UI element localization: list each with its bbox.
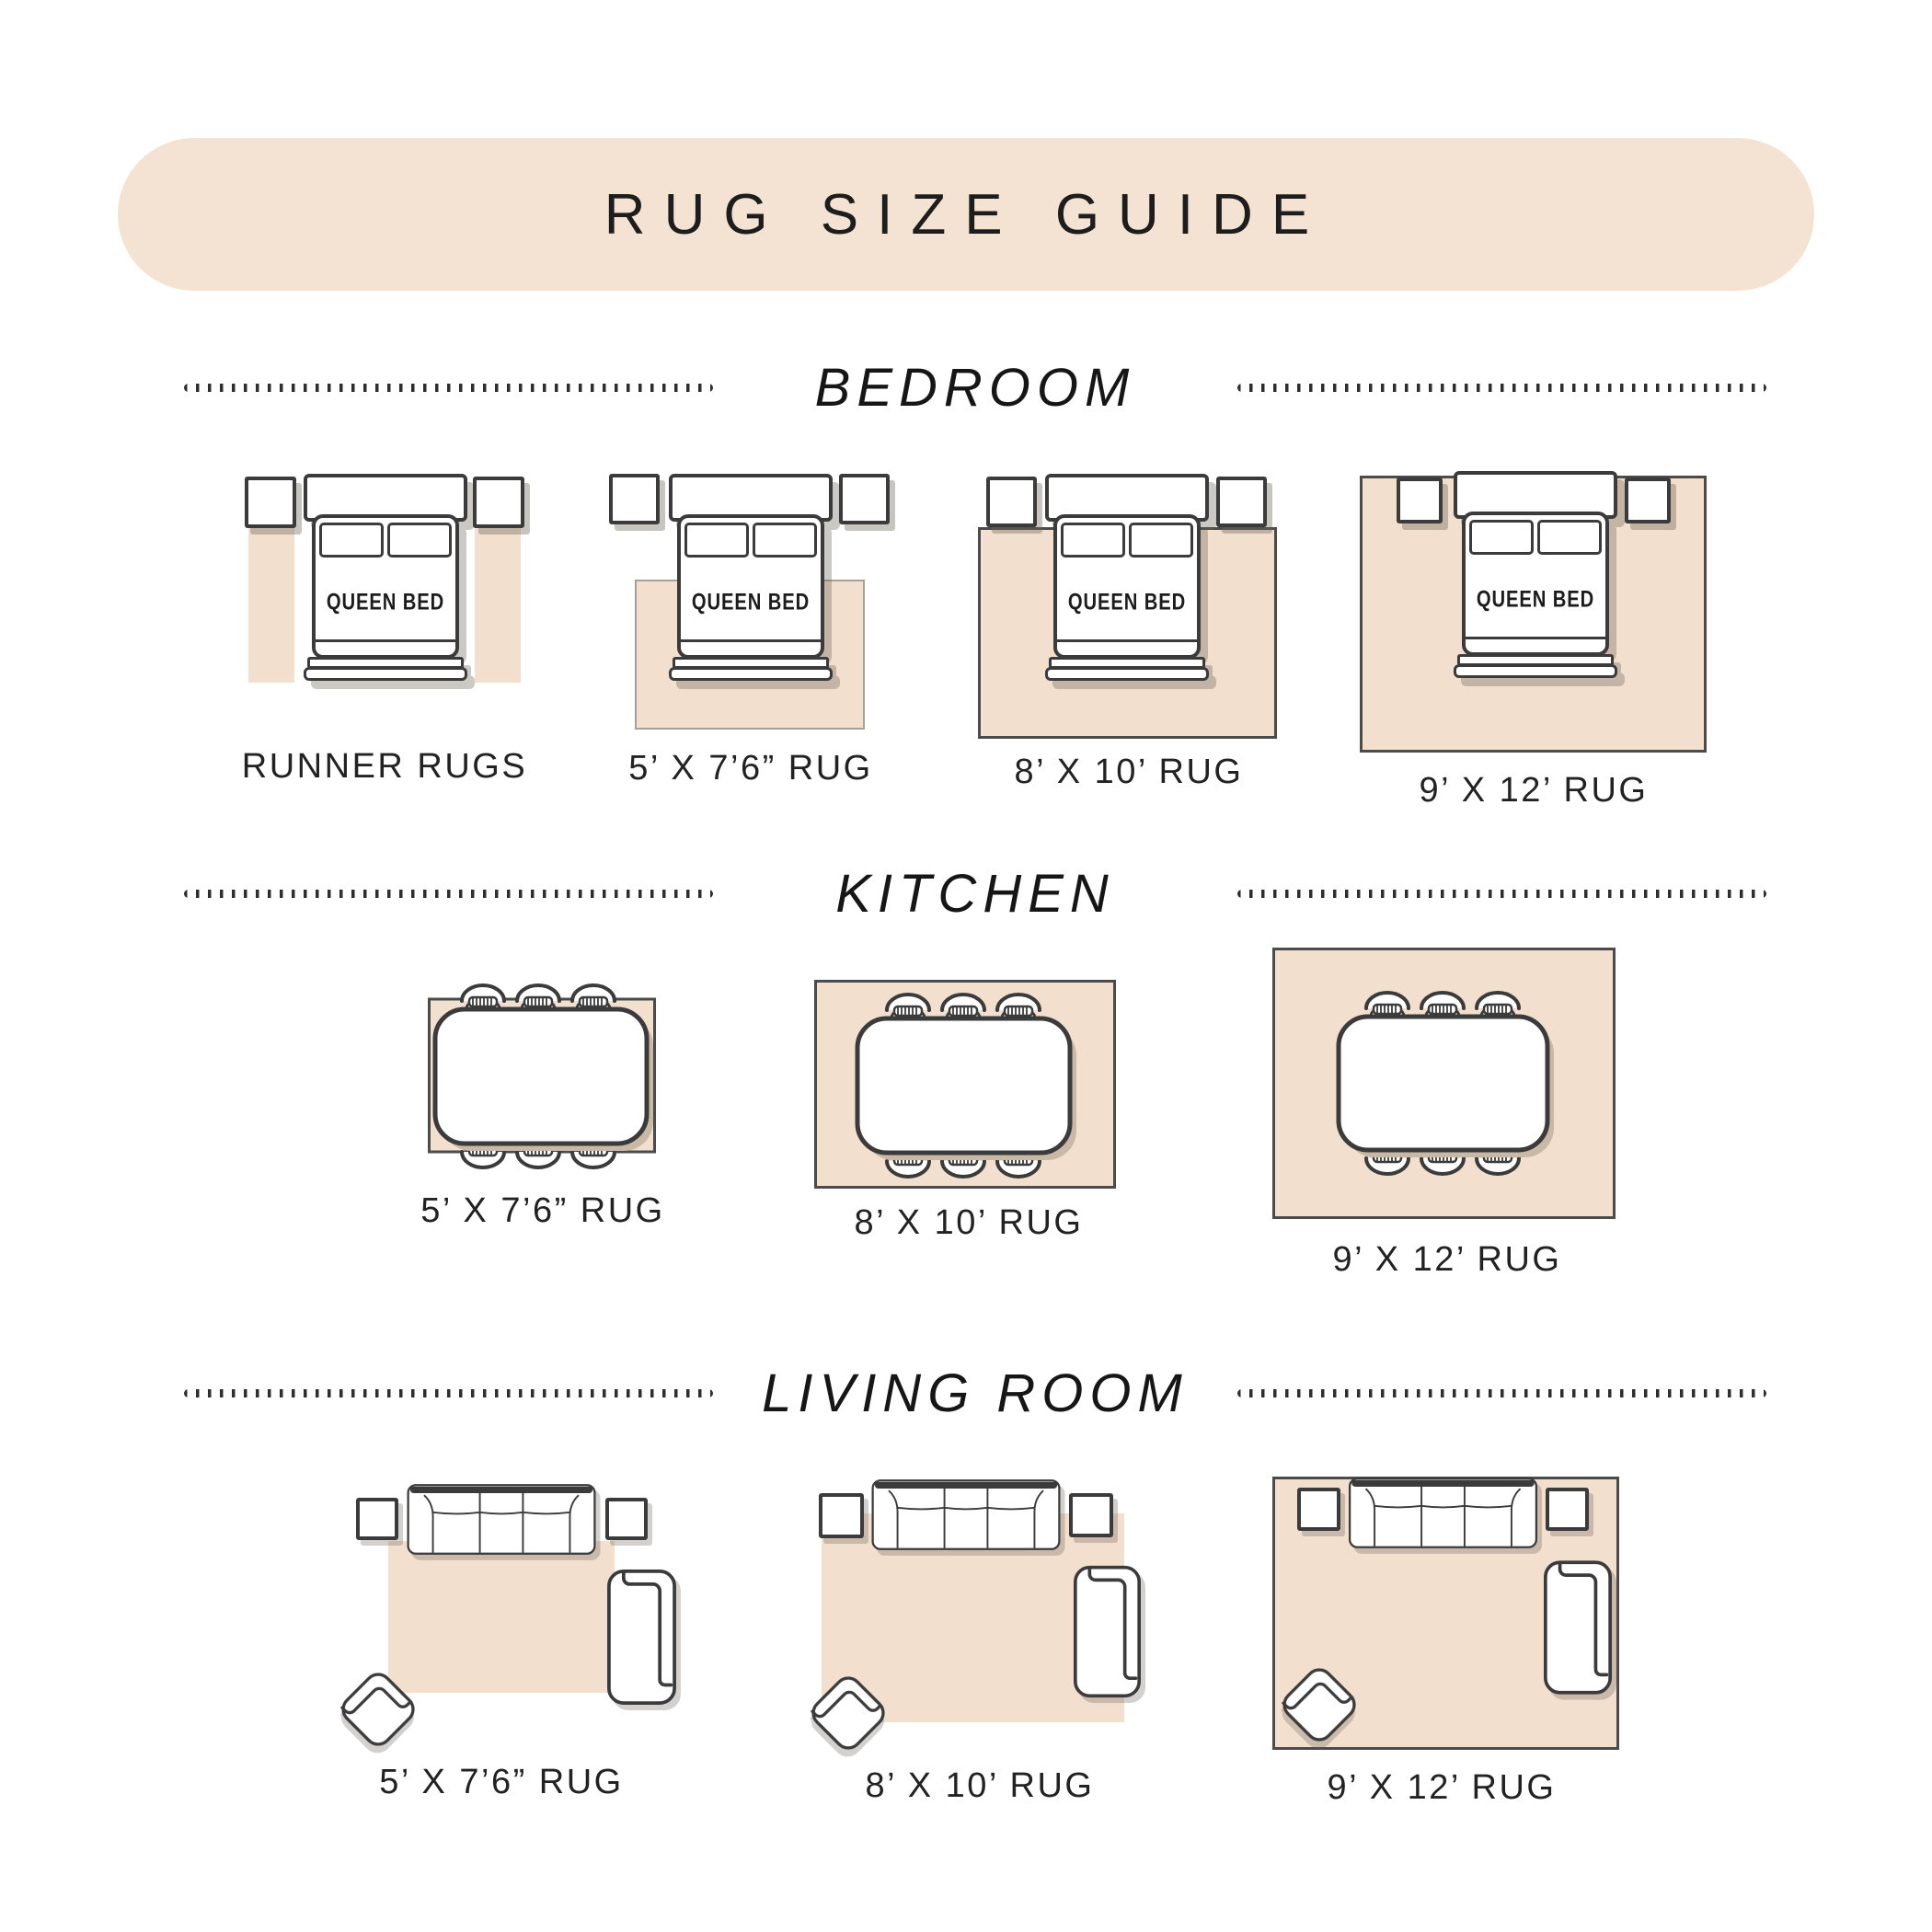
queen-bed: QUEEN BED <box>304 474 467 681</box>
bed-footboard <box>304 667 467 681</box>
lounge-chair-icon <box>1544 1559 1612 1696</box>
section-title-kitchen: KITCHEN <box>713 863 1237 925</box>
kitchen-table-set-9x12 <box>1272 948 1616 1219</box>
dining-table-icon <box>857 1018 1070 1153</box>
dotted-divider-left <box>184 1389 713 1397</box>
bed-pillow <box>319 523 384 558</box>
dotted-divider-right <box>1237 384 1766 392</box>
rug-size-label: 9’ X 12’ RUG <box>1420 771 1649 811</box>
side-table <box>819 1493 864 1538</box>
bed-label: QUEEN BED <box>324 589 447 615</box>
bed-mattress: QUEEN BED <box>312 514 459 659</box>
rug-5x76 <box>388 1541 615 1693</box>
side-table <box>356 1498 398 1540</box>
kitchen-section-header: KITCHEN <box>184 865 1766 922</box>
bed-pillow <box>1061 523 1125 558</box>
bed-fold-line <box>681 639 821 642</box>
living-room-section-header: LIVING ROOM <box>184 1364 1766 1421</box>
bed-label: QUEEN BED <box>1474 586 1597 613</box>
queen-bed: QUEEN BED <box>1045 474 1209 681</box>
queen-bed: QUEEN BED <box>669 474 833 681</box>
kitchen-table-set-5x76 <box>428 980 656 1175</box>
bed-mattress: QUEEN BED <box>677 514 824 659</box>
nightstand <box>245 477 296 528</box>
side-table <box>1069 1493 1113 1537</box>
lounge-chair-icon <box>1074 1564 1141 1699</box>
nightstand <box>473 477 524 528</box>
dotted-divider-right <box>1237 890 1766 898</box>
sofa-icon <box>407 1484 596 1555</box>
bed-pillow <box>1469 520 1534 555</box>
dotted-divider-right <box>1237 1389 1766 1397</box>
bed-pillow <box>1537 520 1602 555</box>
bed-pillow <box>753 523 817 558</box>
rug-size-label: 9’ X 12’ RUG <box>1333 1240 1562 1280</box>
bed-fold-line <box>1057 639 1197 642</box>
rug-size-label: 8’ X 10’ RUG <box>1015 753 1244 792</box>
bed-pillow <box>684 523 749 558</box>
nightstand <box>986 477 1037 527</box>
bed-fold-line <box>316 639 455 642</box>
bedroom-section-header: BEDROOM <box>184 359 1766 416</box>
title-banner: RUG SIZE GUIDE <box>118 138 1814 291</box>
bed-footboard <box>669 667 833 681</box>
rug-size-label: 5’ X 7’6” RUG <box>379 1763 624 1802</box>
page-title: RUG SIZE GUIDE <box>604 182 1328 247</box>
rug-size-label: 8’ X 10’ RUG <box>866 1766 1095 1806</box>
bed-label: QUEEN BED <box>1065 589 1189 615</box>
bed-mattress: QUEEN BED <box>1462 512 1609 656</box>
rug-size-label: RUNNER RUGS <box>242 747 527 787</box>
bed-footboard <box>1045 667 1209 681</box>
nightstand <box>609 474 660 524</box>
sofa-icon <box>1348 1478 1538 1548</box>
rug-size-label: 5’ X 7’6” RUG <box>420 1191 665 1231</box>
sofa-icon <box>871 1479 1061 1550</box>
section-title-living-room: LIVING ROOM <box>713 1363 1237 1424</box>
kitchen-table-set-8x10 <box>814 980 1116 1189</box>
nightstand <box>1397 477 1443 523</box>
dotted-divider-left <box>184 384 713 392</box>
nightstand <box>839 474 890 524</box>
dotted-divider-left <box>184 890 713 898</box>
nightstand <box>1216 477 1267 527</box>
bed-fold-line <box>1466 637 1605 639</box>
runner-rug-right <box>475 521 521 683</box>
rug-size-label: 8’ X 10’ RUG <box>855 1203 1084 1243</box>
rug-size-label: 9’ X 12’ RUG <box>1328 1768 1557 1808</box>
runner-rug-left <box>248 521 294 683</box>
bed-pillow <box>1129 523 1193 558</box>
bed-pillow <box>387 523 452 558</box>
side-table <box>605 1498 648 1540</box>
lounge-chair-icon <box>607 1570 676 1705</box>
dining-table-icon <box>1339 1017 1547 1150</box>
bed-footboard <box>1454 664 1617 678</box>
bed-mattress: QUEEN BED <box>1053 514 1201 659</box>
side-table <box>1297 1488 1340 1531</box>
dining-table-icon <box>435 1009 647 1144</box>
rug-size-guide: RUG SIZE GUIDE BEDROOM QUEEN BED RUNNER … <box>0 0 1932 1932</box>
bed-label: QUEEN BED <box>689 589 812 615</box>
queen-bed: QUEEN BED <box>1454 471 1617 678</box>
side-table <box>1546 1488 1589 1531</box>
section-title-bedroom: BEDROOM <box>713 357 1237 419</box>
rug-size-label: 5’ X 7’6” RUG <box>628 749 873 788</box>
nightstand <box>1625 477 1671 523</box>
